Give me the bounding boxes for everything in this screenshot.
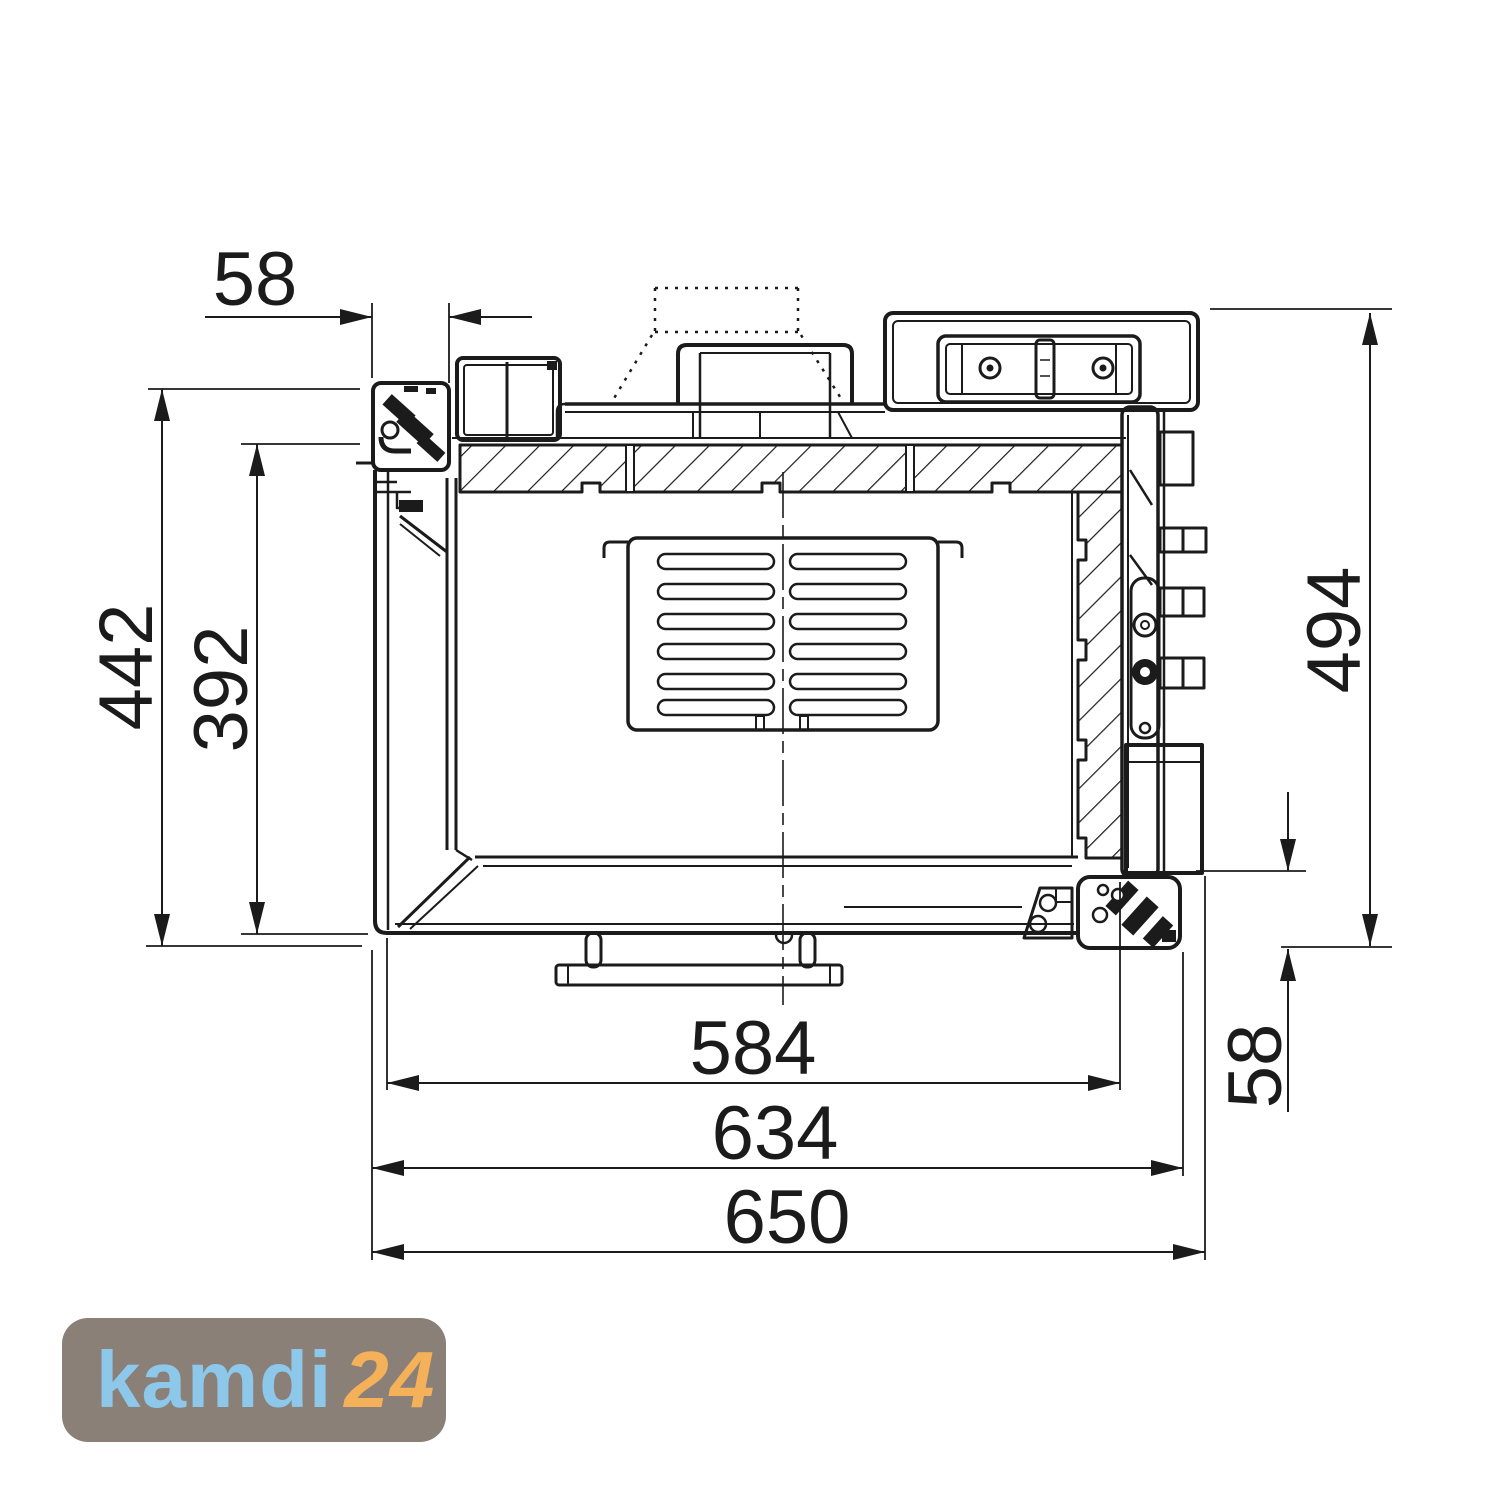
side-channel <box>1122 407 1164 877</box>
dim-label-width-inner: 584 <box>690 1006 817 1091</box>
brand-logo: kamdi 24 <box>62 1318 446 1442</box>
refractory-lining-top <box>460 445 1122 492</box>
dim-58-top: 58 <box>205 237 532 383</box>
dim-label-bottom-right-offset: 58 <box>1213 1024 1298 1109</box>
pedestal-bar <box>556 933 842 985</box>
dim-494: 494 <box>1210 309 1392 947</box>
dim-label-height-right: 494 <box>1292 567 1377 694</box>
flue-collar <box>678 345 852 438</box>
dim-label-width-overall: 650 <box>724 1175 851 1260</box>
mounting-box <box>885 313 1198 410</box>
latch-box-bottom <box>1024 877 1180 948</box>
storage-box <box>457 358 560 440</box>
refractory-lining-right <box>1072 492 1122 858</box>
door-hinge-top <box>356 383 449 556</box>
mounting-bracket <box>938 336 1140 402</box>
dim-label-top-offset: 58 <box>213 237 298 322</box>
brand-suffix: 24 <box>344 1340 435 1420</box>
dim-label-width-mid: 634 <box>712 1091 839 1176</box>
base-floor <box>395 857 1078 943</box>
screenshot-page: 58 442 392 494 <box>0 0 1500 1500</box>
dim-392: 392 <box>179 444 368 934</box>
technical-drawing: 58 442 392 494 <box>0 0 1500 1500</box>
brand-name: kamdi <box>96 1340 332 1420</box>
dim-label-height-inner: 392 <box>179 626 264 753</box>
side-fins <box>1160 432 1206 688</box>
dim-58-right: 58 <box>1196 792 1306 1112</box>
dim-label-height-outer: 442 <box>84 604 169 731</box>
glass-pane <box>447 478 472 860</box>
latch-mechanism <box>1131 578 1159 738</box>
